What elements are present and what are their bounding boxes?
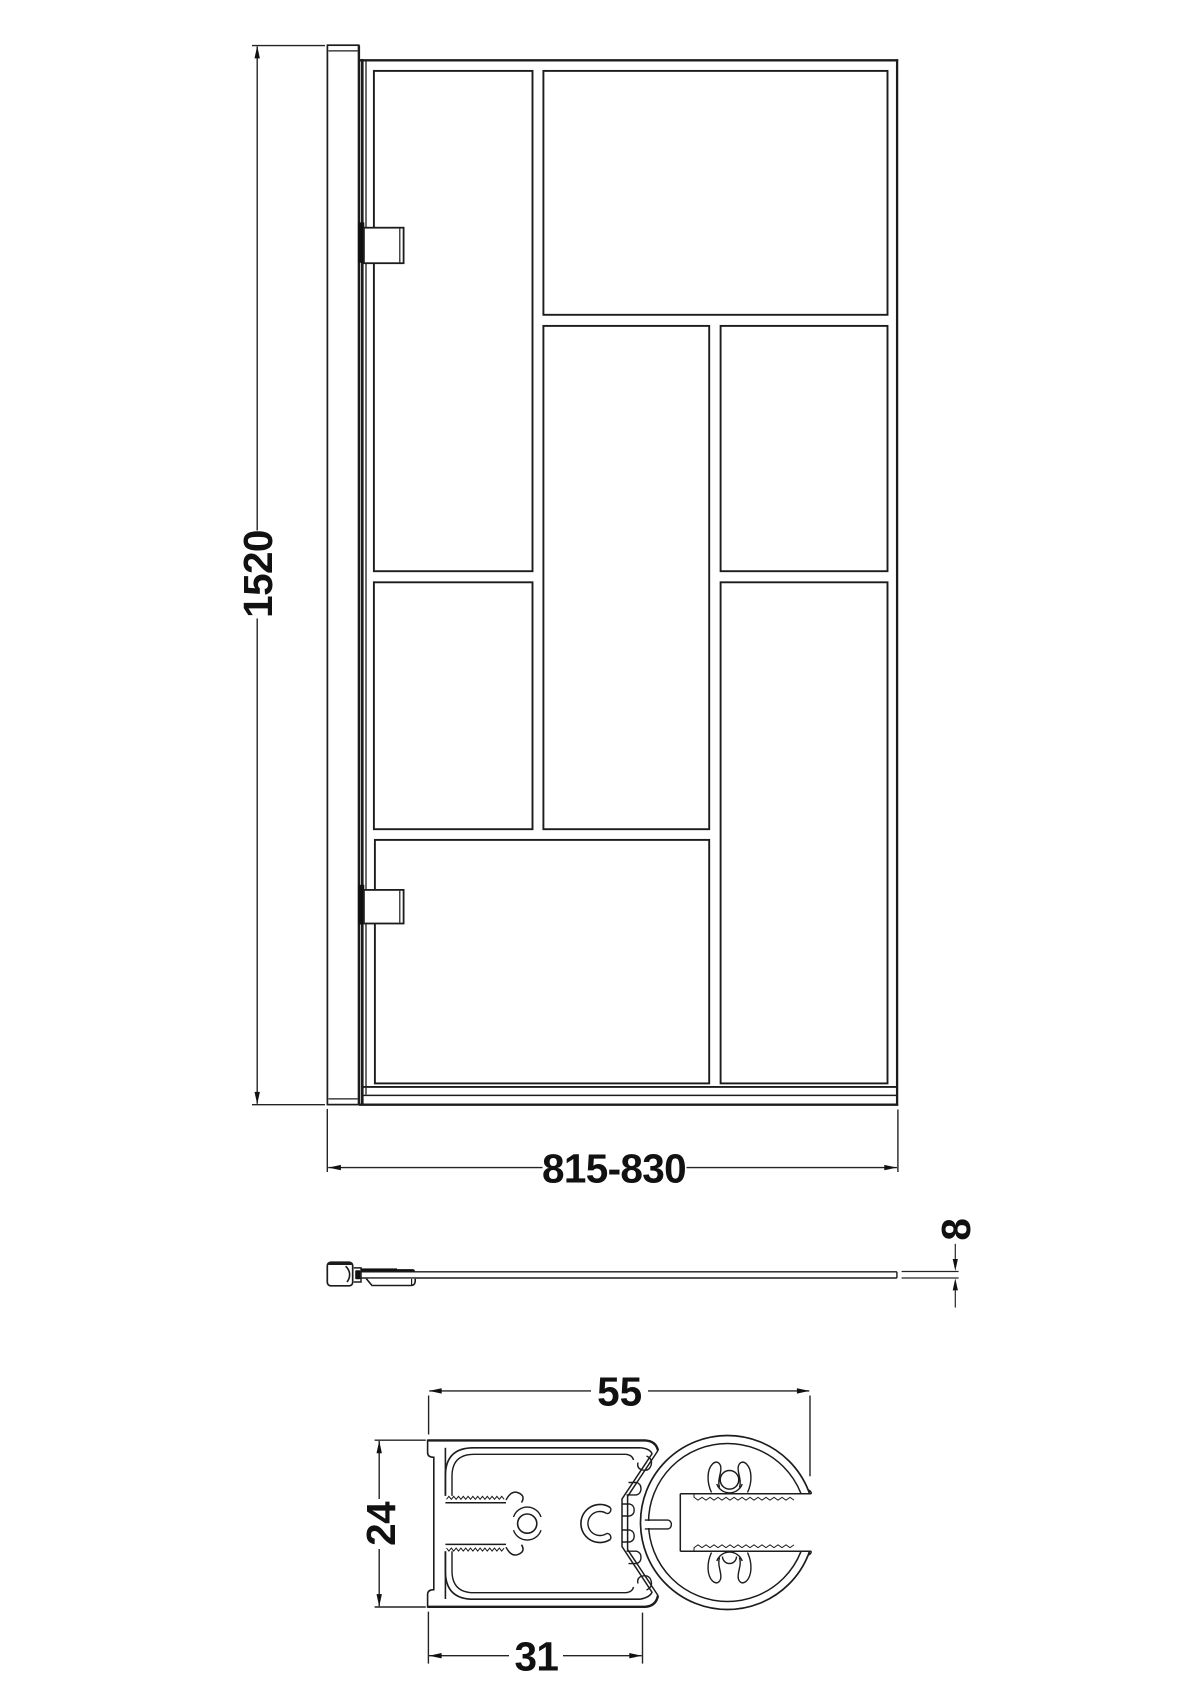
- svg-text:8: 8: [933, 1218, 979, 1241]
- svg-text:31: 31: [514, 1633, 558, 1679]
- svg-text:55: 55: [597, 1369, 642, 1415]
- svg-text:1520: 1520: [235, 530, 281, 618]
- svg-text:24: 24: [358, 1501, 404, 1546]
- svg-text:815-830: 815-830: [542, 1146, 686, 1192]
